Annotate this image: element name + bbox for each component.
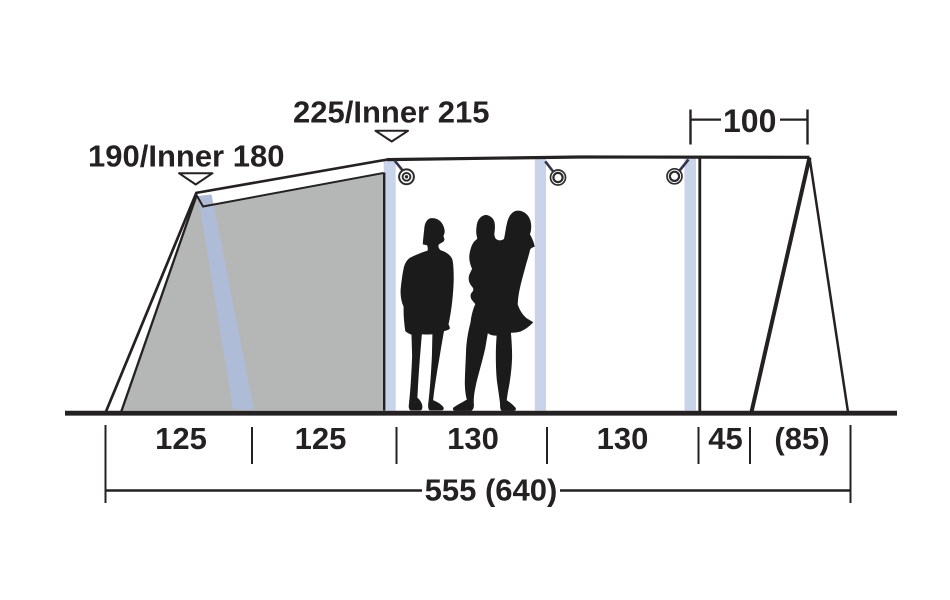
svg-text:(85): (85) bbox=[774, 421, 829, 456]
svg-text:125: 125 bbox=[155, 421, 207, 456]
svg-text:125: 125 bbox=[295, 421, 347, 456]
svg-text:100: 100 bbox=[723, 103, 776, 139]
svg-text:45: 45 bbox=[708, 421, 742, 456]
svg-text:225/Inner 215: 225/Inner 215 bbox=[293, 95, 489, 130]
svg-text:130: 130 bbox=[597, 421, 649, 456]
svg-text:190/Inner 180: 190/Inner 180 bbox=[88, 139, 284, 174]
svg-text:555 (640): 555 (640) bbox=[425, 473, 558, 508]
svg-text:130: 130 bbox=[447, 421, 499, 456]
